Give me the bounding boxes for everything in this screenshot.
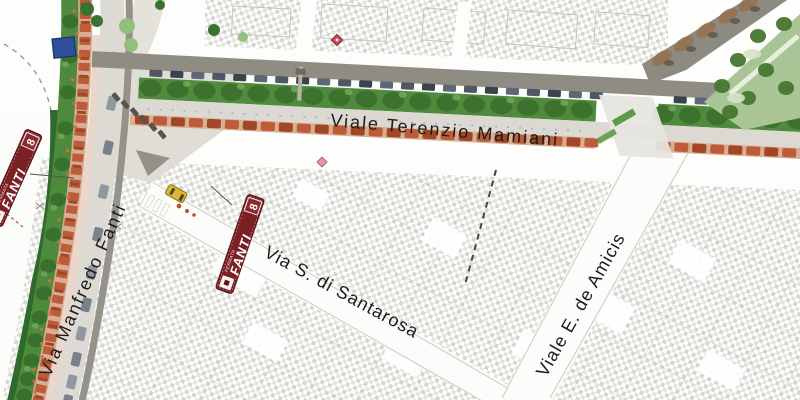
lawn-patch — [743, 49, 761, 59]
car-icon — [380, 81, 393, 89]
tree-icon — [57, 121, 73, 135]
car-icon — [464, 85, 477, 93]
car-icon — [485, 87, 498, 95]
bike-lane-dash — [207, 119, 221, 129]
tree-icon — [758, 63, 774, 77]
flower-dot — [72, 102, 76, 106]
map-viewport: Viale Terenzio Mamiani Via Manfredo Fant… — [0, 0, 800, 400]
tree-icon — [778, 81, 794, 95]
flower-dot — [66, 172, 70, 176]
car-icon — [149, 70, 162, 78]
bike-lane-dash — [566, 137, 580, 147]
flower-dot — [58, 218, 62, 222]
car-icon — [296, 77, 309, 85]
flower-dot — [75, 32, 79, 36]
bike-lane-dash — [584, 138, 598, 148]
tree-icon — [20, 372, 36, 386]
tree-icon — [776, 17, 792, 31]
car-icon — [338, 79, 351, 87]
flower-dot — [78, 55, 82, 59]
lawn-patch — [727, 93, 745, 103]
tree-icon — [32, 323, 39, 329]
car-icon — [443, 84, 456, 92]
tree-icon — [750, 29, 766, 43]
bike-lane-dash — [674, 142, 688, 152]
tree-icon — [124, 38, 138, 52]
tree-icon — [58, 133, 65, 139]
blue-structure-marker — [52, 37, 76, 58]
car-icon — [275, 76, 288, 84]
flower-dot — [33, 390, 37, 394]
tree-icon — [119, 18, 135, 34]
car-icon — [359, 80, 372, 88]
tree-icon — [50, 205, 57, 211]
car-icon — [548, 90, 561, 98]
tree-icon — [91, 15, 103, 27]
tree-icon — [45, 227, 61, 241]
tree-icon — [41, 271, 48, 277]
flower-dot — [40, 328, 44, 332]
car-icon — [527, 89, 540, 97]
car-icon — [664, 60, 674, 66]
car-icon — [686, 46, 696, 52]
car-icon — [708, 32, 718, 38]
tree-icon — [54, 157, 70, 171]
tree-icon — [714, 79, 730, 93]
bike-lane-dash — [746, 146, 760, 156]
bike-lane-dash — [728, 145, 742, 155]
bike-lane-dash — [297, 123, 311, 133]
car-icon — [674, 96, 687, 104]
bike-lane-dash — [243, 121, 257, 131]
car-icon — [422, 83, 435, 91]
bike-lane-dash — [315, 124, 329, 134]
car-icon — [254, 75, 267, 83]
car-icon — [750, 6, 760, 12]
tree-icon — [208, 24, 220, 36]
flower-dot — [71, 78, 75, 82]
tree-icon — [24, 366, 31, 372]
flower-dot — [57, 240, 61, 244]
tree-icon — [60, 85, 76, 99]
bike-lane-dash — [782, 148, 796, 158]
flower-dot — [40, 342, 44, 346]
car-icon — [317, 78, 330, 86]
bike-lane-dash — [710, 144, 724, 154]
bike-lane-dash — [171, 117, 185, 127]
flower-dot — [74, 125, 78, 129]
bike-lane-dash — [261, 122, 275, 132]
bike-lane-dash — [189, 118, 203, 128]
car-icon — [191, 72, 204, 80]
flower-dot — [66, 149, 70, 153]
flower-dot — [48, 312, 52, 316]
car-icon — [569, 91, 582, 99]
car-icon — [170, 71, 183, 79]
tree-icon — [62, 62, 69, 68]
bike-lane-dash — [153, 116, 167, 126]
car-icon — [506, 88, 519, 96]
car-icon — [401, 82, 414, 90]
tree-icon — [80, 2, 94, 16]
tree-icon — [31, 311, 47, 325]
car-icon — [730, 18, 740, 24]
bike-lane-dash — [279, 122, 293, 132]
tree-icon — [238, 32, 248, 42]
flower-dot — [67, 195, 71, 199]
car-icon — [233, 74, 246, 82]
flower-dot — [48, 296, 52, 300]
tree-icon — [40, 259, 56, 273]
tree-icon — [50, 193, 66, 207]
flower-dot — [33, 379, 37, 383]
street-plan-map: Viale Terenzio Mamiani Via Manfredo Fant… — [0, 0, 800, 400]
flower-dot — [57, 261, 61, 265]
flower-dot — [73, 9, 77, 13]
bike-lane-dash — [225, 120, 239, 130]
bike-lane-dash — [764, 147, 778, 157]
tree-icon — [722, 105, 738, 119]
tree-icon — [155, 0, 165, 10]
tree-icon — [27, 333, 43, 347]
car-icon — [212, 73, 225, 81]
bike-lane-dash — [692, 143, 706, 153]
flower-dot — [48, 279, 52, 283]
tree-icon — [62, 14, 78, 28]
